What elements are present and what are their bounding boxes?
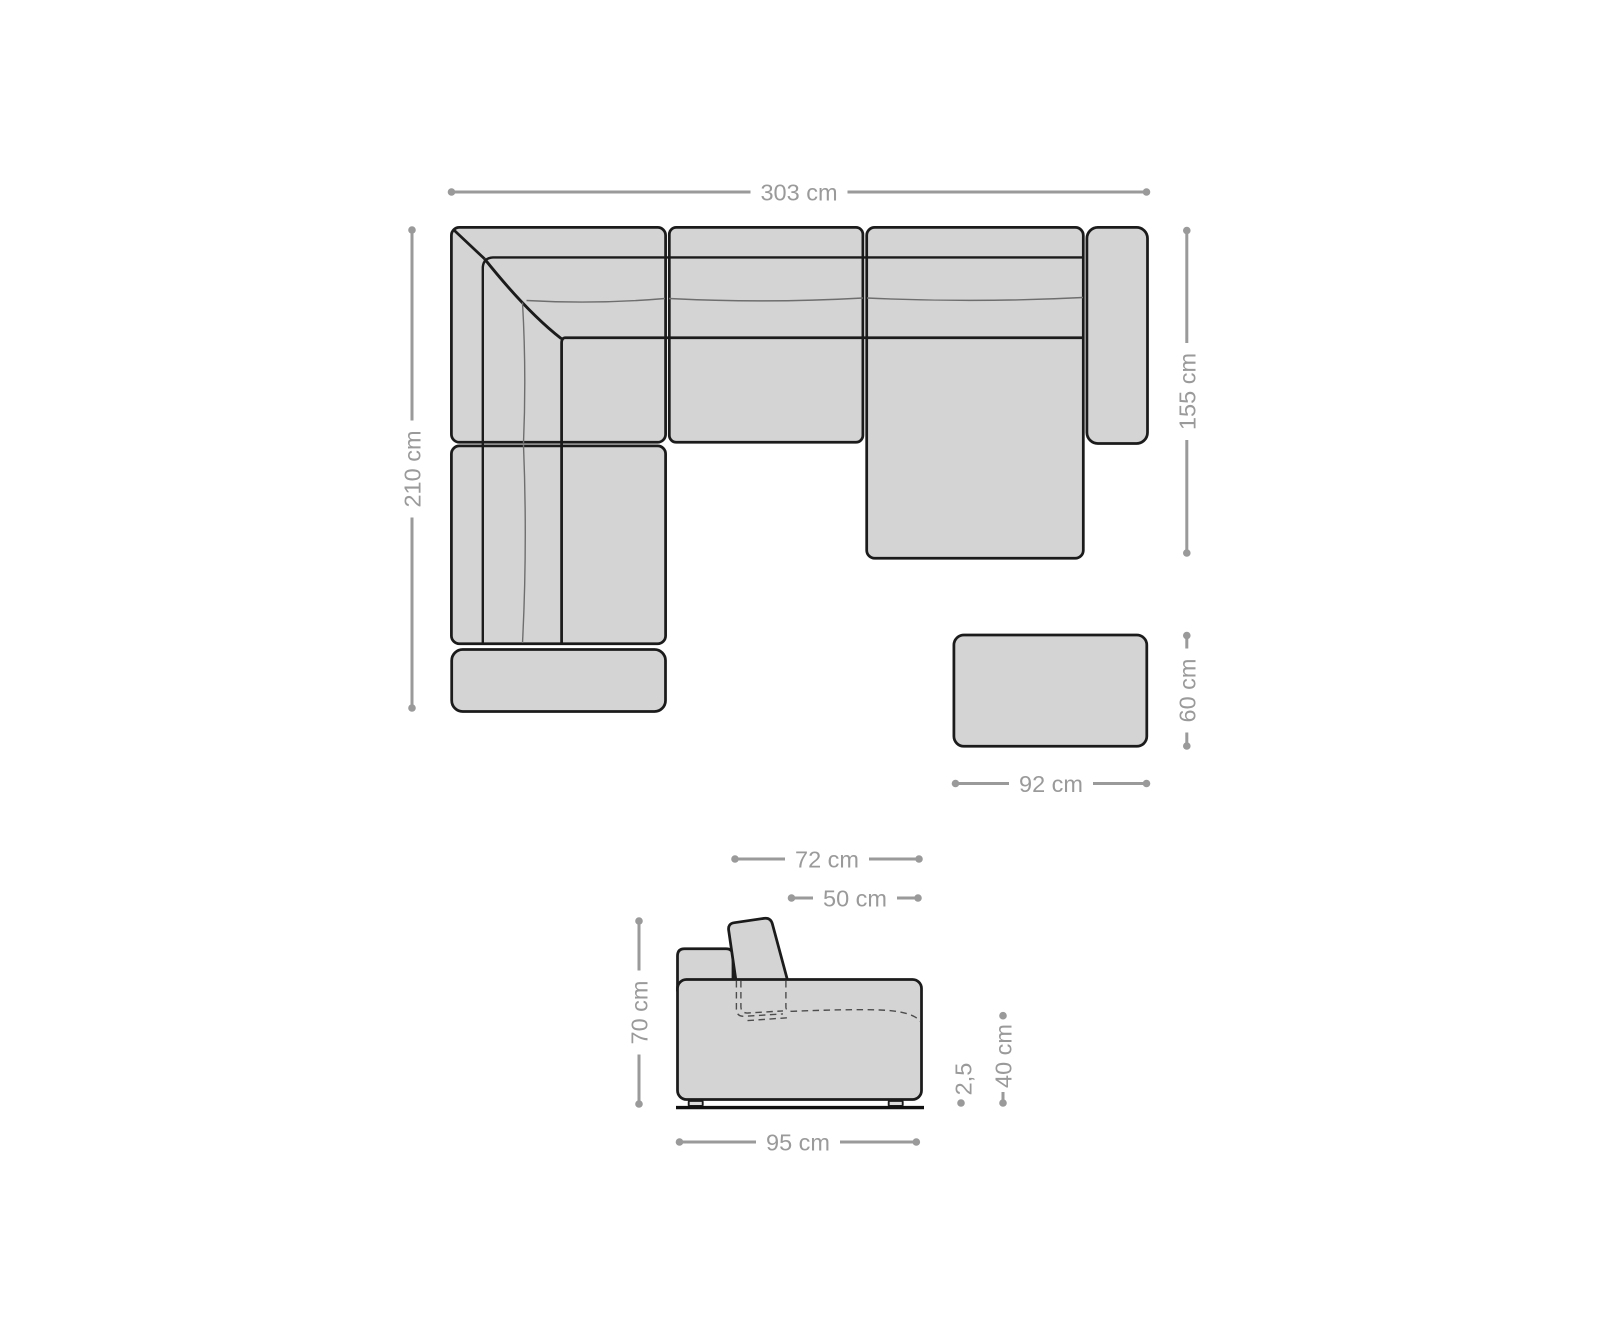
svg-text:72 cm: 72 cm	[795, 847, 859, 873]
svg-text:92 cm: 92 cm	[1019, 771, 1083, 797]
svg-text:303 cm: 303 cm	[760, 180, 837, 206]
svg-text:70 cm: 70 cm	[627, 981, 653, 1045]
svg-text:155 cm: 155 cm	[1174, 353, 1200, 430]
svg-text:60 cm: 60 cm	[1174, 659, 1200, 723]
svg-text:40 cm: 40 cm	[991, 1024, 1017, 1088]
svg-text:210 cm: 210 cm	[400, 430, 426, 507]
svg-text:95 cm: 95 cm	[766, 1130, 830, 1156]
svg-text:2,5: 2,5	[951, 1063, 977, 1096]
svg-text:50 cm: 50 cm	[823, 886, 887, 912]
